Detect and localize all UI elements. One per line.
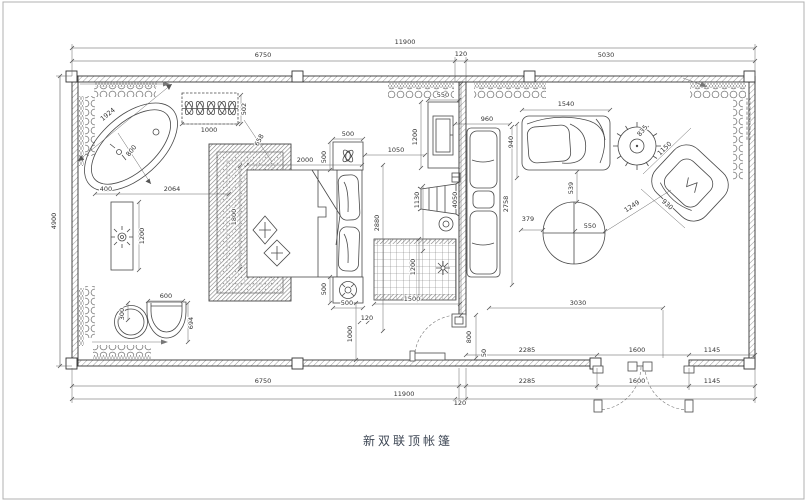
curtain-left bbox=[85, 96, 95, 156]
faucet-icon bbox=[117, 150, 122, 155]
floor-plan-drawing: 1190067501205030490019248001000502400206… bbox=[0, 0, 807, 501]
nightstand-with-plant bbox=[333, 142, 363, 170]
dim-label: 1600 bbox=[629, 346, 646, 354]
dim-label: 4050 bbox=[451, 192, 459, 209]
dim-label: 500 bbox=[342, 130, 354, 138]
dim-label: 835 bbox=[635, 123, 649, 138]
tv-cabinet bbox=[428, 102, 459, 168]
dim-label: 120 bbox=[455, 50, 467, 58]
dim-label: 1130 bbox=[413, 192, 421, 209]
dim-label: 6750 bbox=[255, 377, 272, 385]
curtain-pleat-left bbox=[79, 96, 84, 166]
dim-label: 1249 bbox=[623, 198, 641, 214]
curtain-pleat-top-mid1 bbox=[388, 83, 454, 88]
dim-label: 1200 bbox=[409, 259, 417, 276]
dim-label: 6750 bbox=[255, 51, 272, 59]
dim-label: 11900 bbox=[395, 38, 416, 46]
dim-label: 1145 bbox=[704, 346, 721, 354]
dim-label: 500 bbox=[320, 151, 328, 163]
dim-label: 550 bbox=[437, 91, 449, 99]
dim-label: 1000 bbox=[201, 126, 218, 134]
dim-label: 550 bbox=[584, 222, 596, 230]
potted-plant bbox=[613, 122, 661, 170]
curtains bbox=[79, 78, 751, 359]
drain-icon bbox=[153, 129, 159, 135]
dim-label: 120 bbox=[361, 314, 373, 322]
dim-label: 2758 bbox=[502, 196, 510, 213]
star-ornament bbox=[436, 261, 450, 275]
curtain-pleat-top-mid2 bbox=[474, 83, 546, 88]
curtain-top-mid2 bbox=[474, 88, 546, 98]
dim-label: 2285 bbox=[519, 346, 536, 354]
curtain-left-bottom bbox=[85, 286, 95, 338]
curtain-top-right bbox=[690, 88, 746, 98]
dim-label: 379 bbox=[522, 215, 534, 223]
curtain-right bbox=[733, 98, 743, 180]
walls bbox=[66, 71, 755, 369]
dim-label: 502 bbox=[240, 103, 248, 115]
dim-label: 694 bbox=[187, 317, 195, 329]
curtain-bottom-left bbox=[93, 345, 151, 355]
dim-label: 1540 bbox=[558, 100, 575, 108]
dim-label: 1145 bbox=[704, 377, 721, 385]
dim-label: 1150 bbox=[656, 140, 673, 157]
dim-label: 3030 bbox=[570, 299, 587, 307]
dim-label: 1200 bbox=[138, 228, 146, 245]
dim-label: 960 bbox=[481, 115, 493, 123]
dim-label: 2285 bbox=[519, 377, 536, 385]
dim-label: 800 bbox=[465, 331, 473, 343]
dim-label: 940 bbox=[507, 136, 515, 148]
dim-label: 500 bbox=[341, 299, 353, 307]
vanity-counter bbox=[111, 202, 133, 270]
double-door bbox=[593, 362, 694, 412]
dim-label: 4900 bbox=[50, 213, 58, 230]
single-door bbox=[410, 314, 466, 361]
dim-label: 539 bbox=[567, 182, 575, 194]
floor-plan-sheet: 1190067501205030490019248001000502400206… bbox=[0, 0, 807, 501]
curtain-pleat-top-left bbox=[95, 82, 157, 87]
dim-label: 11900 bbox=[394, 390, 415, 398]
dim-label: 1600 bbox=[629, 377, 646, 385]
curtain-pleat-right bbox=[746, 98, 751, 140]
double-bed bbox=[247, 170, 362, 277]
dim-label: 50 bbox=[480, 349, 488, 357]
dim-label: 800 bbox=[124, 143, 138, 158]
dim-label: 120 bbox=[454, 399, 466, 407]
dim-label: 600 bbox=[160, 292, 172, 300]
dim-label: 300 bbox=[118, 308, 126, 320]
wash-basin bbox=[147, 302, 186, 338]
dim-label: 2880 bbox=[373, 215, 381, 232]
dim-label: 500 bbox=[320, 283, 328, 295]
partition-wall bbox=[459, 82, 466, 315]
dim-label: 400 bbox=[100, 185, 112, 193]
round-table bbox=[543, 202, 605, 264]
dim-label: 1500 bbox=[404, 295, 421, 303]
dim-label: 1800 bbox=[230, 209, 238, 226]
basin-flower-icon bbox=[111, 226, 133, 248]
kettle-icon bbox=[439, 217, 453, 231]
dim-label: 2000 bbox=[297, 156, 314, 164]
planter-box bbox=[182, 93, 238, 124]
dim-label: 1050 bbox=[388, 146, 405, 154]
plan-title: 新双联顶帐篷 bbox=[363, 433, 453, 448]
chaise-lounge bbox=[522, 116, 610, 170]
plants-icon bbox=[184, 100, 238, 115]
dim-label: 5030 bbox=[598, 51, 615, 59]
dim-label: 1000 bbox=[346, 326, 354, 343]
curtain-pleat-bottom-left bbox=[93, 355, 151, 359]
curtain-pleat-left-bottom bbox=[79, 288, 84, 346]
dim-label: 2064 bbox=[164, 185, 181, 193]
dim-label: 1200 bbox=[411, 129, 419, 146]
curtain-top-left bbox=[94, 87, 156, 97]
sectional-sofa bbox=[467, 128, 500, 277]
